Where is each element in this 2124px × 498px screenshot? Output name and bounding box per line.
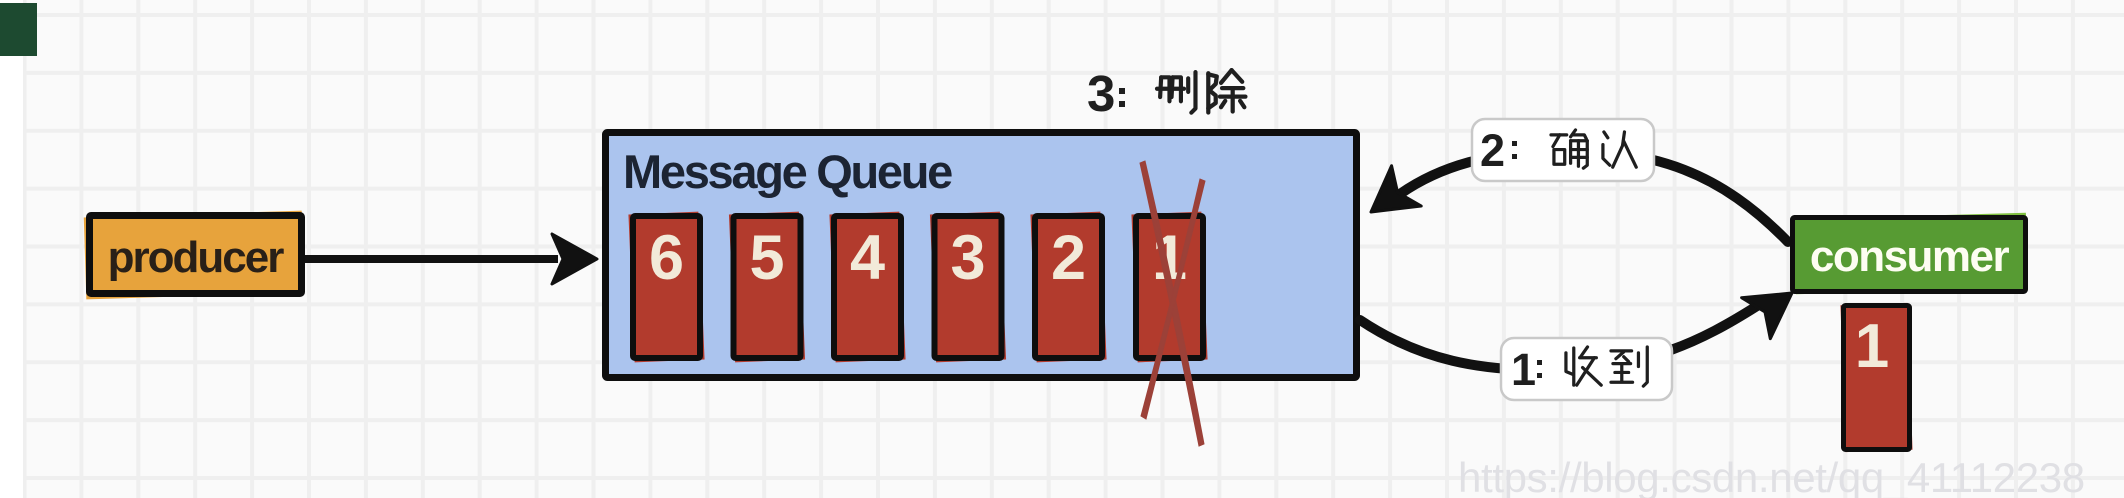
svg-text:2: 2 xyxy=(1480,125,1505,176)
svg-text:3: 3 xyxy=(950,223,985,293)
svg-text:1: 1 xyxy=(1855,312,1889,381)
svg-text:consumer: consumer xyxy=(1810,232,2010,281)
svg-text:producer: producer xyxy=(108,233,285,282)
svg-text:2: 2 xyxy=(1051,223,1086,293)
svg-text:5: 5 xyxy=(749,223,784,293)
svg-text:6: 6 xyxy=(649,223,684,293)
svg-text:4: 4 xyxy=(850,223,885,293)
svg-text:3: 3 xyxy=(1087,65,1115,122)
svg-text:Message Queue: Message Queue xyxy=(623,145,952,198)
svg-text:https://blog.csdn.net/qq_41112: https://blog.csdn.net/qq_41112238 xyxy=(1458,454,2085,498)
svg-text:1: 1 xyxy=(1511,344,1536,395)
